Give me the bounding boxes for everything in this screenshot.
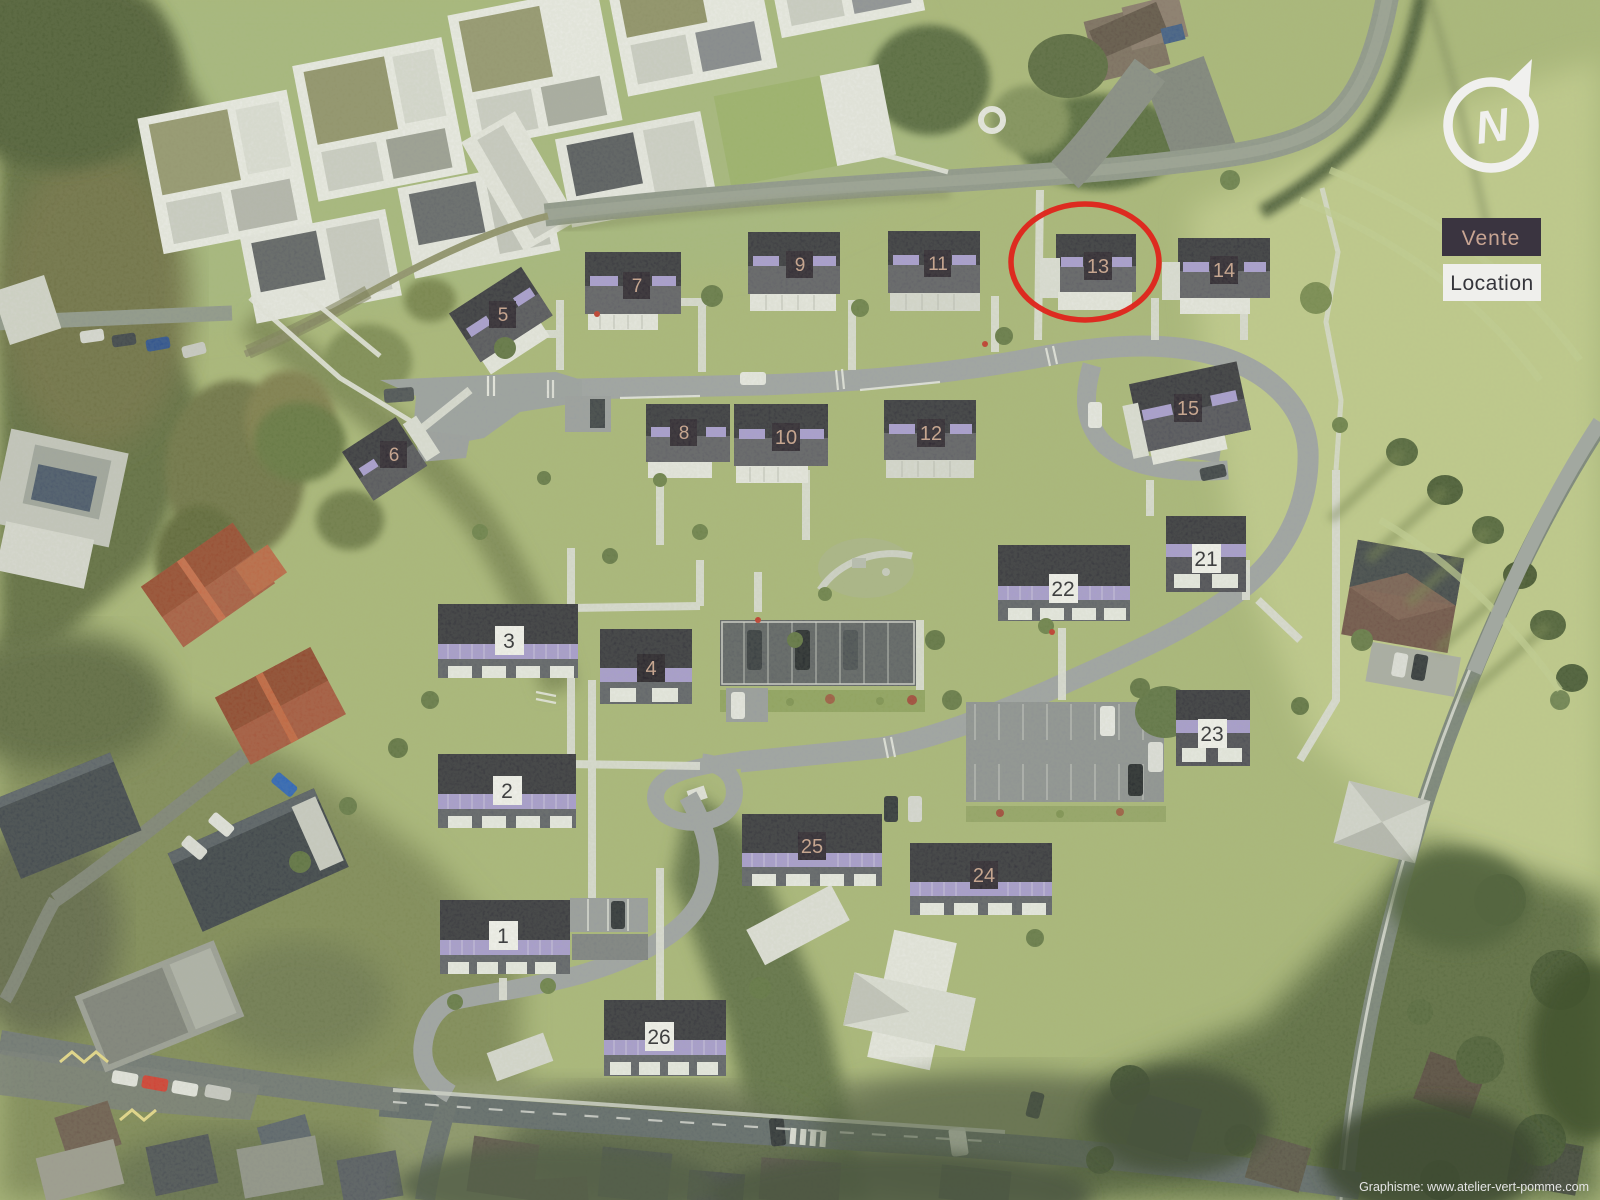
svg-text:Vente: Vente	[1462, 227, 1521, 250]
svg-text:Graphisme: www.atelier-vert-po: Graphisme: www.atelier-vert-pomme.com	[1359, 1180, 1589, 1194]
svg-text:Location: Location	[1450, 272, 1533, 295]
